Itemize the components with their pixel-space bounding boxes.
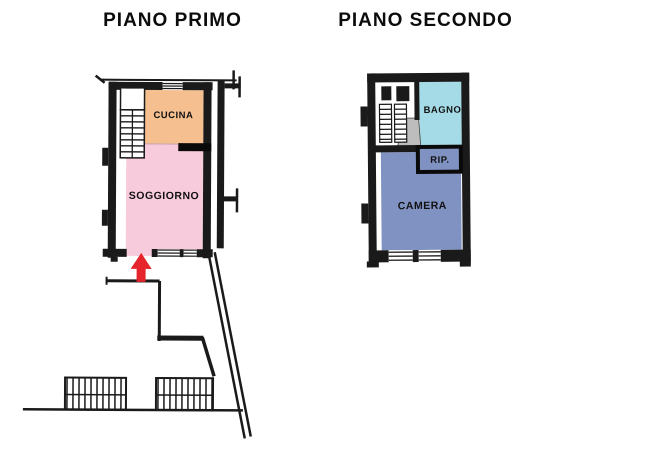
wall2-left-bump1 <box>360 106 367 126</box>
ground-line <box>23 409 243 410</box>
courtyard-elbow-diag <box>202 337 214 376</box>
floor1-plan: CUCINA SOGGIORNO <box>23 69 253 438</box>
wall-bottom-jamb <box>111 257 118 262</box>
wall2-left-bump2 <box>361 203 368 223</box>
wall2-stairs-bagno-divider <box>414 82 419 120</box>
window-top <box>163 82 183 90</box>
label-soggiorno: SOGGIORNO <box>129 190 199 202</box>
wall-bottom-seg2 <box>152 249 158 257</box>
window2-bottom-2 <box>419 250 441 262</box>
wall-left-bump1 <box>102 148 108 166</box>
wall2-bottom-seg1 <box>369 250 389 262</box>
wall2-corner-tick-right <box>460 261 471 267</box>
window2-bottom-1 <box>389 250 413 262</box>
wall-outer-right <box>217 80 225 248</box>
wall-bottom-seg1 <box>103 249 127 257</box>
fence-band-right <box>156 378 213 410</box>
wall2-bottom-seg2 <box>413 250 419 262</box>
window-bottom-2 <box>184 249 197 257</box>
window-bottom-1 <box>158 249 180 257</box>
wall-bottom-seg3 <box>180 249 184 257</box>
wall-divider-cucina-soggiorno <box>178 143 211 151</box>
label-camera: CAMERA <box>398 200 447 212</box>
wall2-mid-horizontal <box>375 145 420 152</box>
wall2-left <box>367 73 377 262</box>
wall-outer-right-stub-top <box>225 83 241 88</box>
floorplan-drawing: CUCINA SOGGIORNO <box>0 0 650 453</box>
staircase-floor2 <box>379 86 409 142</box>
wall2-bottom-seg3 <box>441 250 471 262</box>
staircase-floor1 <box>120 88 144 158</box>
wall-left-bump2 <box>102 210 108 226</box>
top-survey-line <box>100 80 237 81</box>
wall-left <box>108 82 117 258</box>
wall2-corner-tick-left <box>367 261 379 267</box>
label-rip: RIP. <box>430 155 449 166</box>
fence-band-left <box>65 378 126 410</box>
floorplan-canvas: PIANO PRIMO PIANO SECONDO <box>0 0 650 453</box>
label-bagno: BAGNO <box>423 105 461 116</box>
label-cucina: CUCINA <box>153 110 193 121</box>
entrance-door-floor <box>127 245 152 256</box>
floor2-plan: BAGNO RIP. CAMERA <box>360 73 471 268</box>
entrance-arrow-icon <box>131 253 152 282</box>
wall-right-inner <box>203 82 212 258</box>
wall2-top <box>367 73 469 83</box>
